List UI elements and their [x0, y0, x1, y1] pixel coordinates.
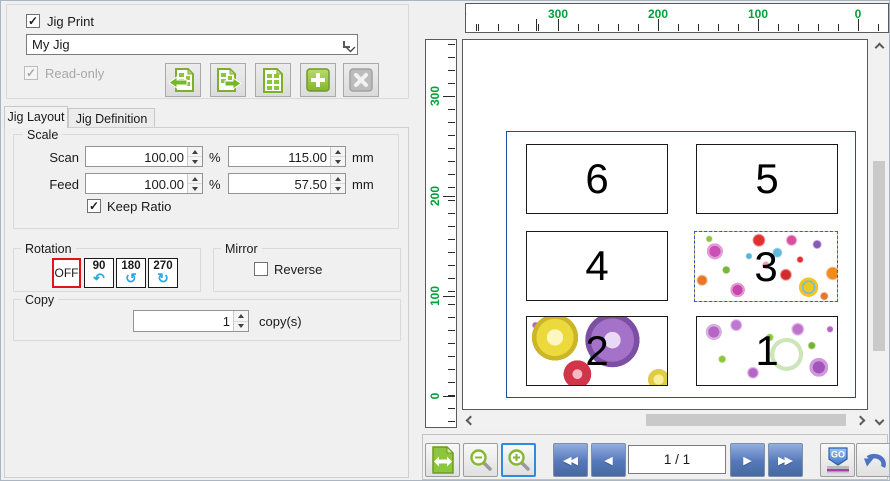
- triangle-down-icon: [335, 160, 341, 164]
- triangle-up-icon: [238, 314, 244, 318]
- spin-up-button[interactable]: [188, 147, 202, 156]
- keep-ratio-label: Keep Ratio: [107, 199, 171, 214]
- ruler-major-ticks: [443, 40, 455, 427]
- undo-arrow-icon: [861, 448, 887, 472]
- ruler-label: 100: [428, 281, 442, 311]
- slot-number: 4: [585, 245, 608, 287]
- jig-print-checkbox[interactable]: ✓: [26, 14, 40, 28]
- reverse-checkbox[interactable]: [254, 262, 268, 276]
- spin-up-button[interactable]: [188, 174, 202, 183]
- feed-length-unit: mm: [352, 177, 374, 192]
- rotation-90-button[interactable]: 90 ↶: [84, 258, 114, 288]
- read-only-label: Read-only: [45, 66, 104, 81]
- scan-length-unit: mm: [352, 150, 374, 165]
- previous-page-icon: ◀: [604, 454, 612, 467]
- slot-number: 5: [755, 158, 778, 200]
- chevron-up-icon: [874, 42, 884, 52]
- scan-label: Scan: [43, 150, 79, 165]
- last-page-icon: ▶▶: [778, 454, 793, 467]
- zoom-out-icon: [469, 448, 493, 472]
- vertical-scroll-thumb[interactable]: [873, 161, 885, 351]
- scale-group-label: Scale: [23, 128, 62, 142]
- vertical-ruler: 300 200 100 0: [425, 39, 457, 428]
- close-x-icon: [348, 67, 374, 93]
- horizontal-scroll-thumb[interactable]: [646, 414, 846, 426]
- jig-slot-6[interactable]: 6: [526, 144, 668, 214]
- duplicate-jig-button[interactable]: [255, 63, 291, 97]
- copy-unit-label: copy(s): [259, 314, 302, 329]
- zoom-out-button[interactable]: [463, 443, 498, 477]
- feed-percent-value: 100.00: [86, 174, 187, 193]
- jig-import-icon: [169, 67, 197, 94]
- go-label: GO: [830, 450, 844, 460]
- jig-export-icon: [214, 67, 242, 94]
- feed-percent-unit: %: [209, 177, 221, 192]
- page-indicator-field[interactable]: 1 / 1: [628, 445, 726, 474]
- jig-grid-icon: [260, 67, 286, 94]
- scan-percent-value: 100.00: [86, 147, 187, 166]
- scan-length-field[interactable]: 115.00: [228, 146, 346, 167]
- rotation-180-button[interactable]: 180 ↺: [116, 258, 146, 288]
- triangle-down-icon: [238, 324, 244, 328]
- vertical-scrollbar[interactable]: [871, 39, 887, 428]
- spin-down-button[interactable]: [331, 156, 345, 166]
- jig-select-value: My Jig: [32, 37, 70, 52]
- scroll-up-button[interactable]: [871, 39, 887, 55]
- import-jig-button[interactable]: [165, 63, 201, 97]
- rotation-off-label: OFF: [55, 267, 79, 279]
- undo-button[interactable]: [856, 443, 890, 477]
- first-page-icon: ◀◀: [563, 454, 578, 467]
- scan-length-value: 115.00: [229, 147, 330, 166]
- rotate-cw-arrow-icon: ↻: [149, 271, 177, 285]
- jig-slot-1-floral-image[interactable]: 1: [696, 316, 838, 386]
- add-jig-button[interactable]: [300, 63, 336, 97]
- triangle-up-icon: [335, 177, 341, 181]
- zoom-in-button[interactable]: [501, 443, 536, 477]
- go-print-button[interactable]: GO: [820, 443, 855, 477]
- rotation-off-button[interactable]: OFF: [52, 258, 81, 288]
- plus-icon: [305, 67, 331, 93]
- feed-label: Feed: [43, 177, 79, 192]
- triangle-down-icon: [192, 187, 198, 191]
- jig-print-label: Jig Print: [47, 14, 94, 29]
- rotation-group-label: Rotation: [21, 242, 76, 256]
- spin-down-button[interactable]: [234, 321, 248, 332]
- fit-page-icon: [430, 446, 456, 474]
- jig-slot-4[interactable]: 4: [526, 231, 668, 301]
- reverse-label: Reverse: [274, 262, 322, 277]
- scan-percent-field[interactable]: 100.00: [85, 146, 203, 167]
- chevron-right-icon: [855, 415, 865, 425]
- jig-select-dropdown[interactable]: My Jig: [26, 34, 358, 55]
- feed-length-field[interactable]: 57.50: [228, 173, 346, 194]
- horizontal-ruler: 400 300 200 100 0: [465, 3, 889, 33]
- tab-jig-definition[interactable]: Jig Definition: [68, 108, 155, 127]
- triangle-down-icon: [335, 187, 341, 191]
- triangle-up-icon: [192, 177, 198, 181]
- last-page-button[interactable]: ▶▶: [768, 443, 803, 477]
- copy-group-label: Copy: [21, 293, 58, 307]
- checkmark-icon: ✓: [26, 67, 36, 79]
- next-page-icon: ▶: [743, 454, 751, 467]
- ruler-label: 0: [428, 381, 442, 411]
- tab-jig-layout[interactable]: Jig Layout: [4, 106, 68, 128]
- triangle-up-icon: [335, 150, 341, 154]
- jig-slot-5[interactable]: 5: [696, 144, 838, 214]
- jig-print-dialog: ✓ Jig Print My Jig ✓ Read-only: [0, 0, 890, 481]
- jig-slot-3-floral-image[interactable]: 3: [694, 231, 838, 302]
- horizontal-scrollbar[interactable]: [462, 412, 868, 428]
- ruler-major-ticks: [466, 19, 888, 31]
- checkmark-icon: ✓: [89, 200, 99, 212]
- slot-number: 3: [754, 246, 777, 288]
- spin-up-button[interactable]: [331, 147, 345, 156]
- mirror-group-label: Mirror: [221, 242, 262, 256]
- copy-count-field[interactable]: 1: [133, 310, 249, 332]
- scroll-down-button[interactable]: [871, 412, 887, 428]
- triangle-down-icon: [192, 160, 198, 164]
- tab-label: Jig Definition: [76, 112, 148, 126]
- ruler-label: 200: [428, 181, 442, 211]
- spin-down-button[interactable]: [188, 156, 202, 166]
- delete-jig-button: [343, 63, 379, 97]
- preview-toolbar: ◀◀ ◀ 1 / 1 ▶ ▶▶ GO: [422, 434, 888, 480]
- slot-number: 2: [585, 330, 608, 372]
- previous-page-button[interactable]: ◀: [591, 443, 626, 477]
- spin-up-button[interactable]: [234, 311, 248, 321]
- slot-number: 1: [755, 330, 778, 372]
- rotation-270-button[interactable]: 270 ↻: [148, 258, 178, 288]
- go-badge-icon: GO: [824, 446, 852, 474]
- next-page-button[interactable]: ▶: [730, 443, 765, 477]
- first-page-button[interactable]: ◀◀: [553, 443, 588, 477]
- read-only-checkbox: ✓: [24, 66, 38, 80]
- rotate-180-arrow-icon: ↺: [117, 271, 145, 285]
- spin-down-button[interactable]: [331, 183, 345, 193]
- jig-print-frame: ✓ Jig Print My Jig ✓ Read-only: [6, 4, 409, 99]
- export-jig-button[interactable]: [210, 63, 246, 97]
- feed-length-value: 57.50: [229, 174, 330, 193]
- chevron-left-icon: [465, 415, 475, 425]
- ruler-label: 300: [428, 81, 442, 111]
- rotate-ccw-arrow-icon: ↶: [85, 271, 113, 285]
- copy-count-value: 1: [134, 311, 233, 331]
- slot-number: 6: [585, 158, 608, 200]
- preview-canvas[interactable]: 6 5 4 3 2 1: [462, 39, 868, 410]
- chevron-down-icon: [343, 41, 350, 48]
- chevron-down-icon: [874, 415, 884, 425]
- triangle-up-icon: [192, 150, 198, 154]
- checkmark-icon: ✓: [28, 15, 38, 27]
- jig-slot-2-floral-image[interactable]: 2: [526, 316, 668, 386]
- spin-down-button[interactable]: [188, 183, 202, 193]
- spin-up-button[interactable]: [331, 174, 345, 183]
- keep-ratio-checkbox[interactable]: ✓: [87, 199, 101, 213]
- zoom-in-icon: [507, 448, 531, 472]
- fit-to-window-button[interactable]: [425, 443, 460, 477]
- scan-percent-unit: %: [209, 150, 221, 165]
- scroll-right-button[interactable]: [852, 412, 868, 428]
- scroll-left-button[interactable]: [462, 412, 478, 428]
- feed-percent-field[interactable]: 100.00: [85, 173, 203, 194]
- tab-label: Jig Layout: [8, 110, 65, 124]
